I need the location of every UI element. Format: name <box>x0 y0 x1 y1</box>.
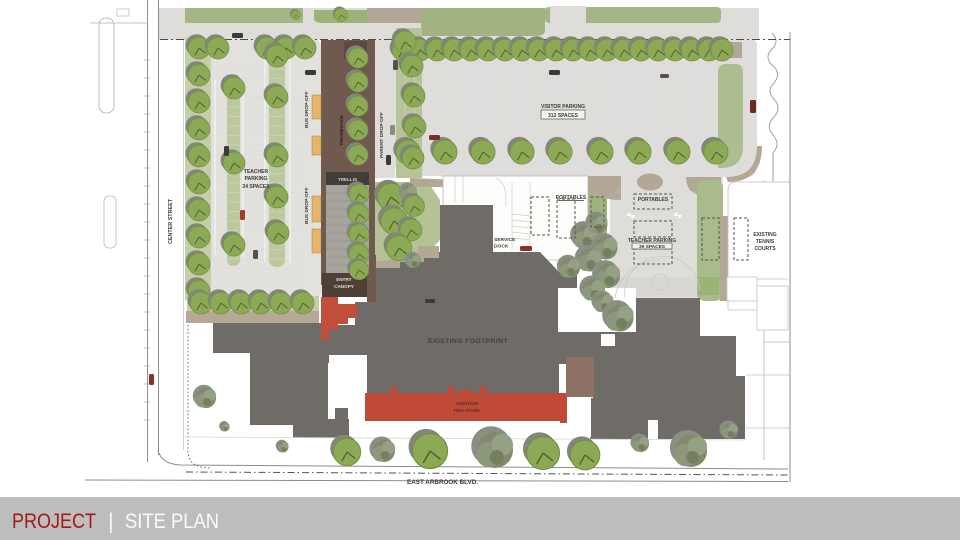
svg-text:ADDITION: ADDITION <box>456 401 479 406</box>
svg-text:EXISTING FOOTPRINT: EXISTING FOOTPRINT <box>428 338 509 345</box>
svg-text:PARKING: PARKING <box>245 176 268 182</box>
svg-text:CENTER STREET: CENTER STREET <box>168 199 174 244</box>
svg-text:ENTRY: ENTRY <box>336 277 351 282</box>
svg-text:BUS DROP-OFF: BUS DROP-OFF <box>304 187 310 224</box>
svg-text:COURTS: COURTS <box>754 246 776 252</box>
svg-text:312 SPACES: 312 SPACES <box>548 113 579 119</box>
svg-text:SERVICE: SERVICE <box>494 237 516 243</box>
svg-text:|: | <box>108 509 114 534</box>
svg-text:PORTABLES: PORTABLES <box>638 197 669 203</box>
svg-text:CANOPY: CANOPY <box>334 284 354 289</box>
svg-text:PROMENADE: PROMENADE <box>339 115 344 145</box>
svg-text:TENNIS: TENNIS <box>756 239 775 245</box>
svg-text:PARENT DROP-OFF: PARENT DROP-OFF <box>379 112 385 158</box>
svg-text:EXISTING: EXISTING <box>753 232 776 238</box>
svg-text:39 SPACES: 39 SPACES <box>639 244 666 250</box>
svg-text:TWO-STORY: TWO-STORY <box>453 408 481 413</box>
svg-text:SITE PLAN: SITE PLAN <box>125 509 219 533</box>
svg-text:34 SPACES: 34 SPACES <box>242 184 270 190</box>
svg-text:BUS DROP-OFF: BUS DROP-OFF <box>304 91 310 128</box>
svg-text:PROJECT: PROJECT <box>12 509 96 533</box>
svg-text:VISITOR PARKING: VISITOR PARKING <box>541 104 585 110</box>
svg-text:DOCK: DOCK <box>494 244 509 250</box>
svg-text:TEACHER: TEACHER <box>244 169 269 175</box>
svg-text:EAST ARBROOK BLVD.: EAST ARBROOK BLVD. <box>407 480 478 486</box>
svg-text:TRELLIS: TRELLIS <box>338 177 357 182</box>
